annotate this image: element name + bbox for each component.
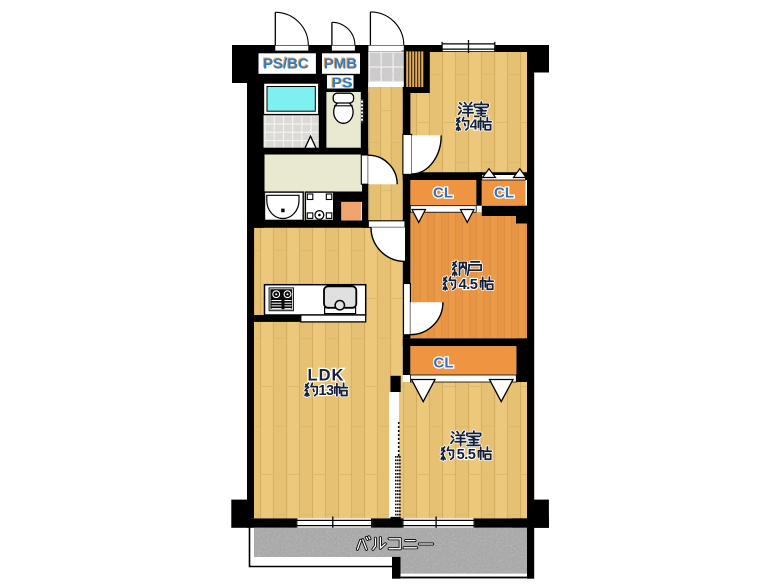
svg-text:CL: CL bbox=[434, 355, 454, 372]
svg-text:CL: CL bbox=[433, 185, 453, 202]
svg-text:5.5: 5.5 bbox=[457, 447, 476, 463]
svg-text:CL: CL bbox=[494, 185, 514, 202]
svg-text:13: 13 bbox=[318, 383, 334, 399]
svg-text:PMB: PMB bbox=[324, 55, 358, 72]
svg-text:PS/BC: PS/BC bbox=[263, 55, 309, 72]
svg-text:PS: PS bbox=[332, 75, 353, 91]
svg-text:4.5: 4.5 bbox=[459, 277, 478, 293]
